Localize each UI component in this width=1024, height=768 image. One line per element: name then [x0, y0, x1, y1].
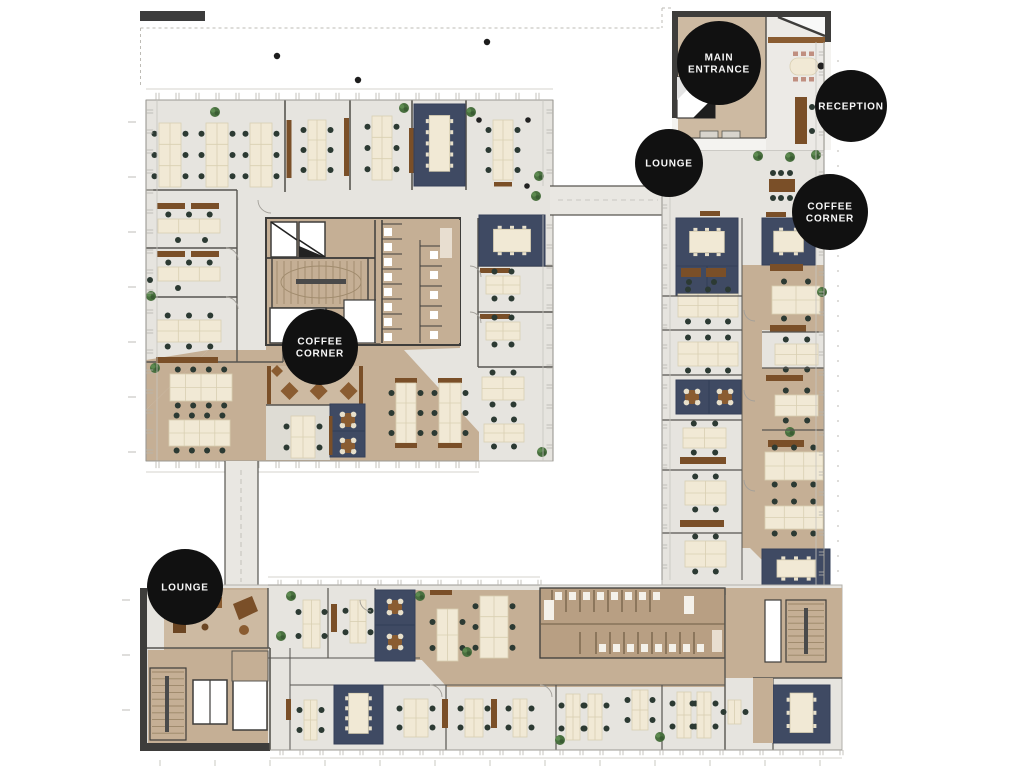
svg-text:CORNER: CORNER — [296, 348, 344, 359]
svg-text:LOUNGE: LOUNGE — [645, 158, 693, 169]
svg-text:COFFEE: COFFEE — [807, 201, 852, 212]
svg-text:RECEPTION: RECEPTION — [818, 101, 884, 112]
svg-text:CORNER: CORNER — [806, 213, 854, 224]
svg-text:MAIN: MAIN — [705, 52, 734, 63]
svg-text:COFFEE: COFFEE — [297, 336, 342, 347]
svg-text:LOUNGE: LOUNGE — [161, 582, 209, 593]
svg-text:ENTRANCE: ENTRANCE — [688, 64, 750, 75]
